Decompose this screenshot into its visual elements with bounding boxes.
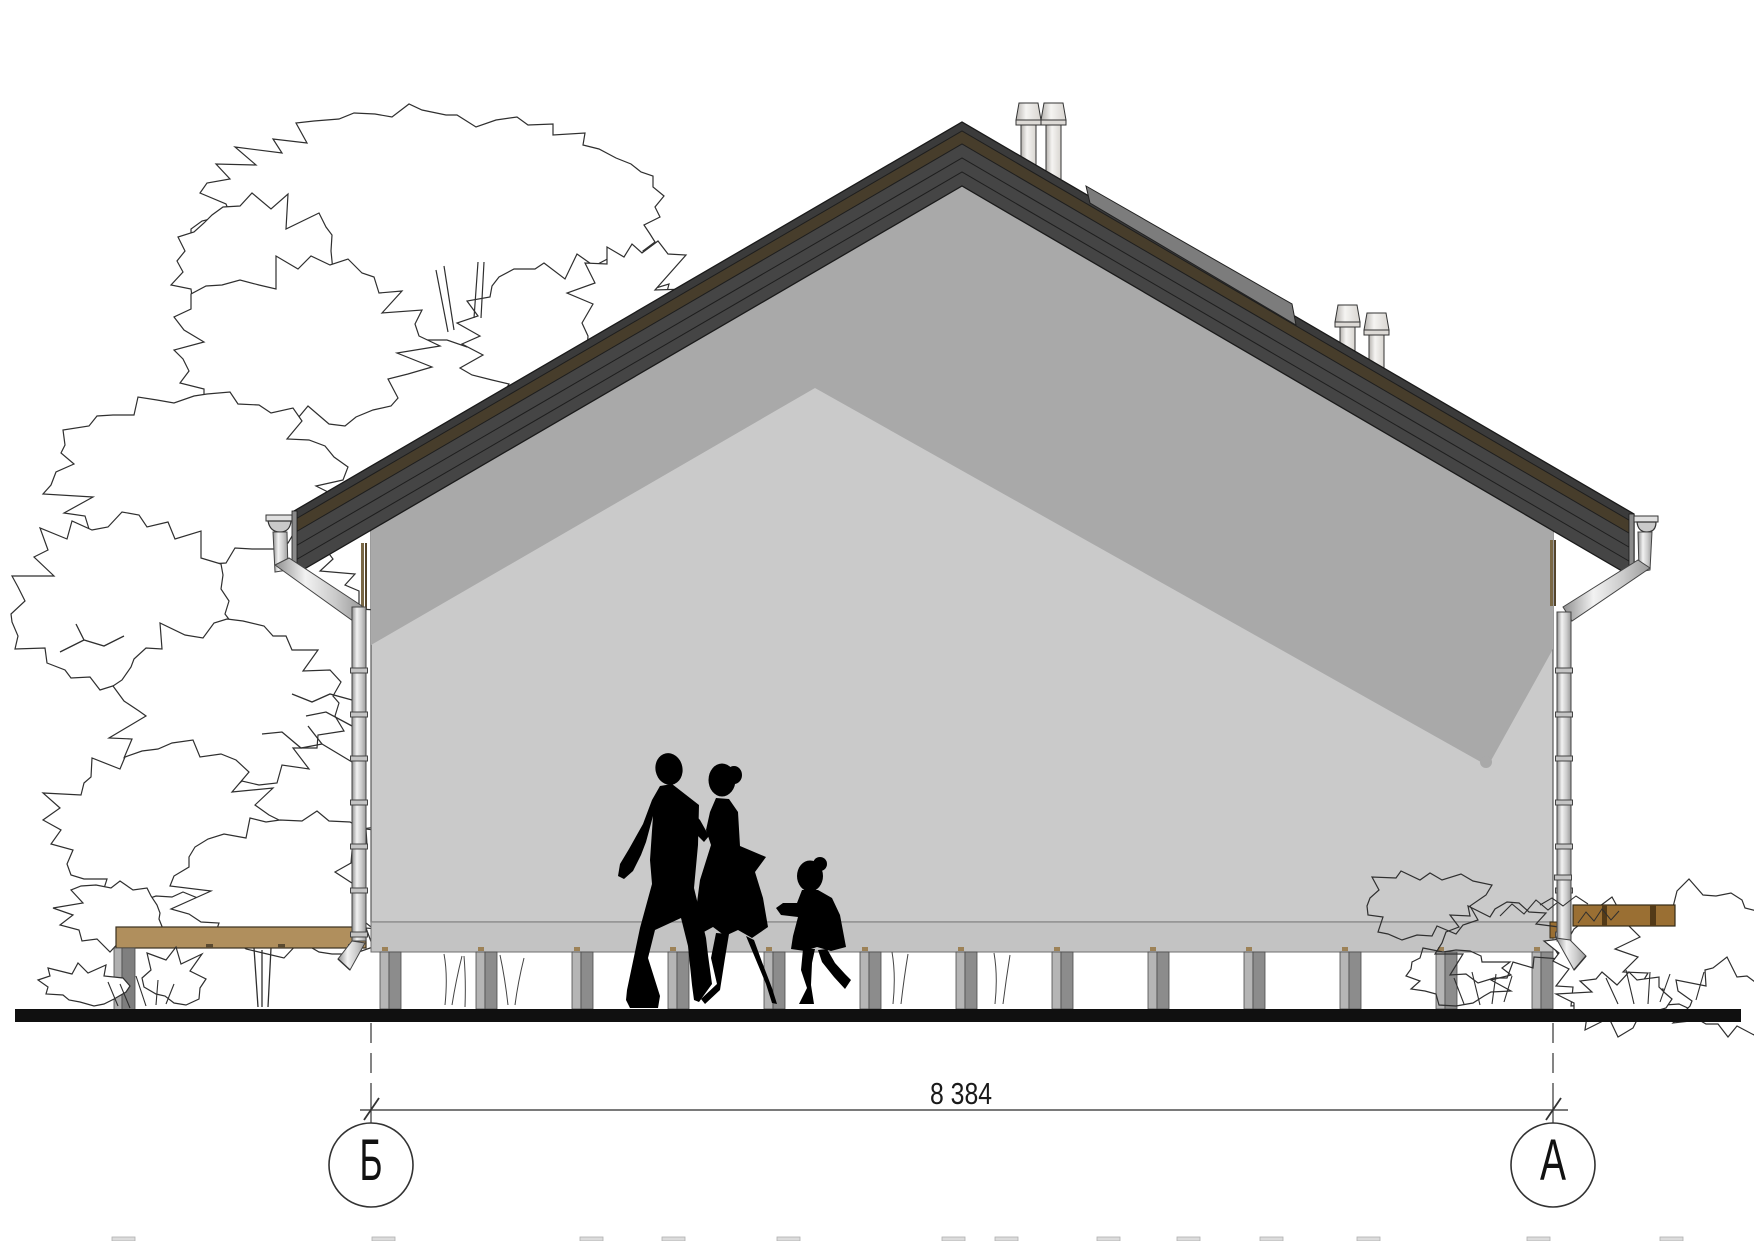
svg-text:8 384: 8 384	[930, 1076, 992, 1111]
svg-text:Б: Б	[360, 1128, 383, 1193]
svg-text:А: А	[1540, 1128, 1566, 1193]
